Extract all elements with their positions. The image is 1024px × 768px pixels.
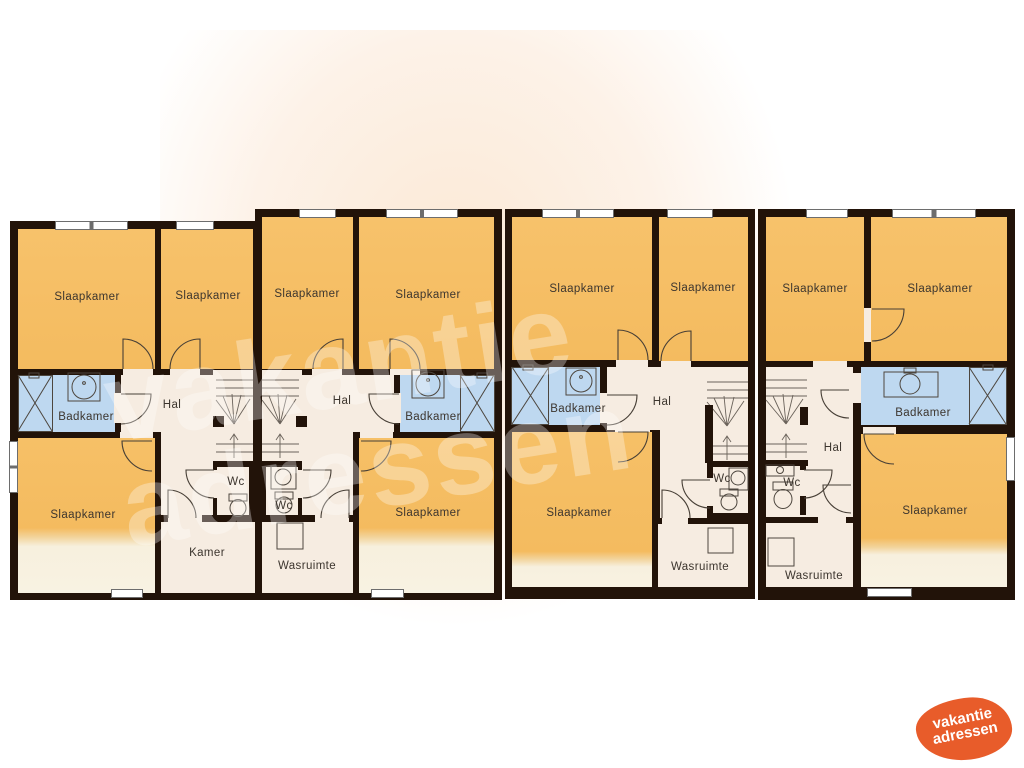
room-wasruimte <box>262 522 353 593</box>
door-opening <box>212 470 218 498</box>
room-label: Wasruimte <box>671 561 729 573</box>
stair-landing-wall <box>705 405 713 463</box>
room-wc <box>217 467 249 515</box>
door-opening <box>168 515 202 522</box>
window <box>542 209 614 218</box>
vakantieadressen-logo: vakantie adressen <box>914 695 1014 764</box>
window <box>9 441 18 493</box>
room-label: Slaapkamer <box>782 283 847 295</box>
room-badkamer <box>18 375 115 432</box>
room-label: Kamer <box>189 547 225 559</box>
room-label: Hal <box>333 395 351 407</box>
room-label: Slaapkamer <box>907 283 972 295</box>
room-label: Wc <box>713 473 730 485</box>
room-label: Wc <box>275 500 292 512</box>
window <box>299 209 336 218</box>
door-opening <box>390 369 420 375</box>
door-opening <box>315 515 349 522</box>
door-opening <box>853 373 861 403</box>
room-label: Hal <box>824 442 842 454</box>
stair-landing-wall <box>213 416 224 427</box>
door-opening <box>123 369 153 375</box>
window <box>371 589 404 598</box>
door-opening <box>662 518 688 524</box>
room-hal <box>161 432 213 515</box>
door-opening <box>818 517 846 523</box>
room-label: Hal <box>653 396 671 408</box>
room-label: Slaapkamer <box>902 505 967 517</box>
window <box>1006 437 1015 481</box>
door-opening <box>813 361 847 367</box>
door-opening <box>297 470 303 498</box>
logo-text: vakantie adressen <box>914 702 1014 750</box>
room-wasruimte <box>658 524 748 587</box>
room-label: Slaapkamer <box>50 509 115 521</box>
room-label: Badkamer <box>405 411 461 423</box>
room-badkamer <box>512 367 600 425</box>
door-opening <box>800 470 806 496</box>
room-badkamer <box>400 375 494 432</box>
window <box>892 209 976 218</box>
door-opening <box>360 432 393 438</box>
door-opening <box>661 361 691 367</box>
door-opening <box>863 427 896 434</box>
window <box>176 221 214 230</box>
window <box>386 209 458 218</box>
room-label: Slaapkamer <box>395 507 460 519</box>
room-label: Slaapkamer <box>274 288 339 300</box>
room-label: Slaapkamer <box>670 282 735 294</box>
room-label: Badkamer <box>58 411 114 423</box>
room-label: Slaapkamer <box>546 507 611 519</box>
room-label: Wasruimte <box>278 560 336 572</box>
door-opening <box>170 369 200 375</box>
room-label: Slaapkamer <box>54 291 119 303</box>
window <box>55 221 128 230</box>
window <box>667 209 713 218</box>
window <box>806 209 848 218</box>
door-opening <box>616 360 648 367</box>
room-label: Badkamer <box>550 403 606 415</box>
room-wc <box>766 466 800 514</box>
door-opening <box>615 425 650 432</box>
door-opening <box>394 393 401 423</box>
room-label: Hal <box>163 399 181 411</box>
room-label: Slaapkamer <box>175 290 240 302</box>
room-label: Slaapkamer <box>549 283 614 295</box>
room-label: Wasruimte <box>785 570 843 582</box>
room-label: Wc <box>783 477 800 489</box>
room-label: Badkamer <box>895 407 951 419</box>
door-opening <box>114 393 122 423</box>
room-hal <box>302 432 353 515</box>
floorplan-image: Slaapkamer Slaapkamer Badkamer Hal Slaap… <box>0 0 1024 768</box>
window <box>867 588 912 597</box>
door-opening <box>120 432 153 438</box>
room-label: Slaapkamer <box>395 289 460 301</box>
door-opening <box>707 478 713 506</box>
stair-landing-wall <box>296 416 307 427</box>
stair-landing-wall <box>800 407 808 425</box>
room-hal <box>660 430 707 518</box>
door-opening <box>864 308 871 342</box>
room-label: Wc <box>227 476 244 488</box>
window <box>111 589 143 598</box>
door-opening <box>312 369 342 375</box>
